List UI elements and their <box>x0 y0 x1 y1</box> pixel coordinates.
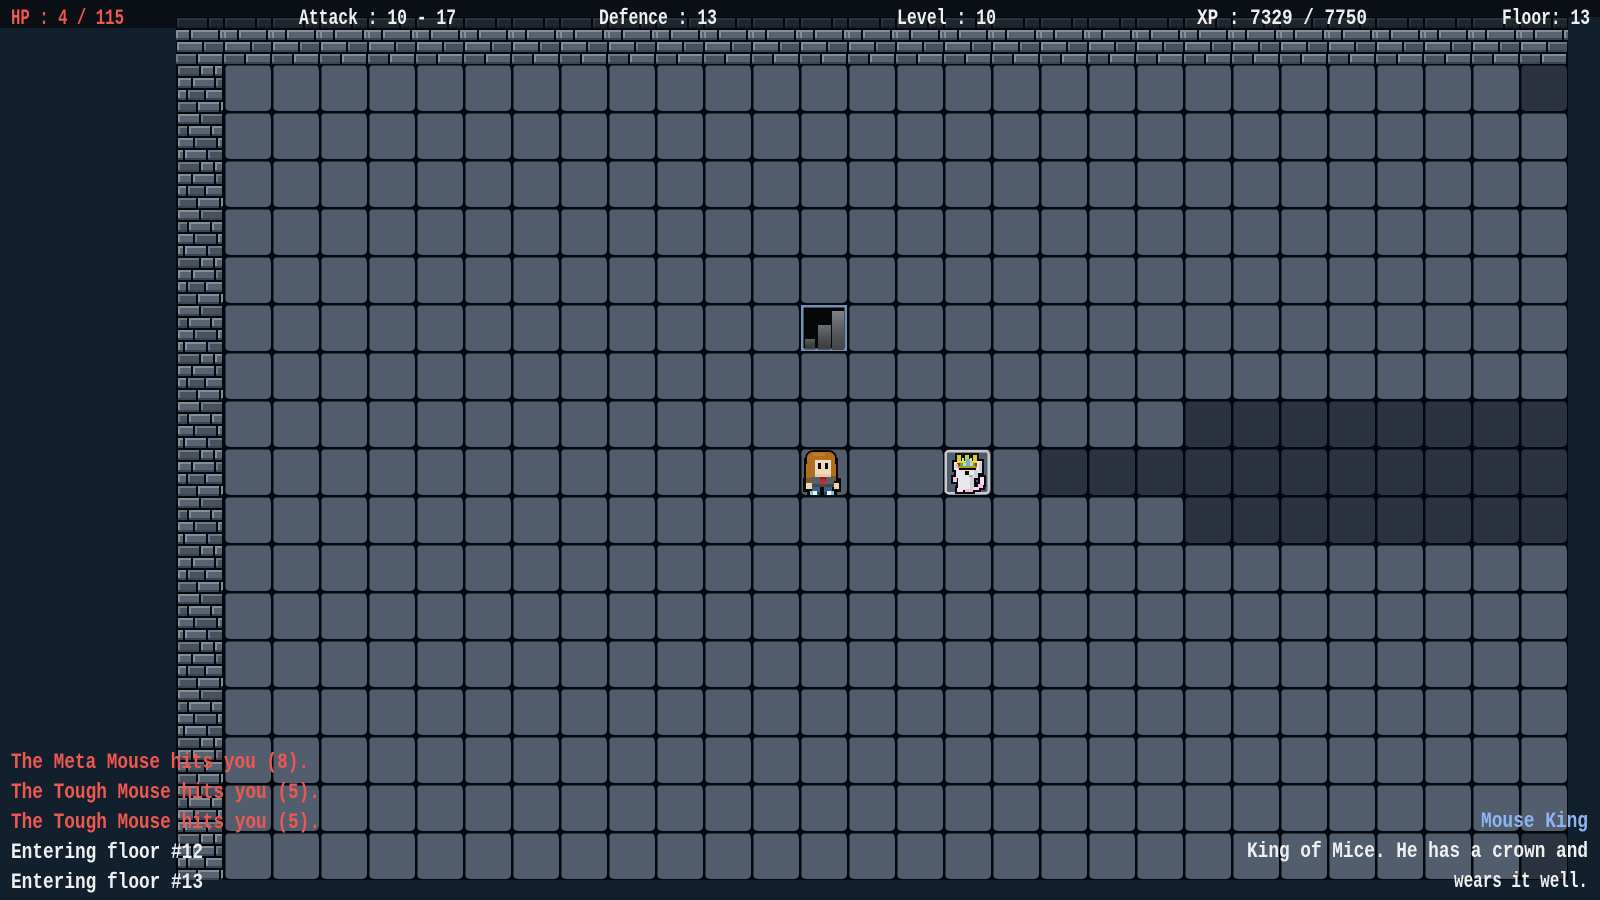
svg-text:HP : 4 / 115: HP : 4 / 115 <box>11 6 124 31</box>
svg-text:The Tough Mouse hits you (5).: The Tough Mouse hits you (5). <box>11 780 320 805</box>
svg-text:Defence : 13: Defence : 13 <box>599 6 717 31</box>
svg-text:XP : 7329 / 7750: XP : 7329 / 7750 <box>1197 6 1367 31</box>
svg-text:Entering floor #13: Entering floor #13 <box>11 870 203 895</box>
svg-text:wears it well.: wears it well. <box>1454 869 1588 894</box>
svg-text:Attack : 10 - 17: Attack : 10 - 17 <box>299 6 456 31</box>
svg-text:Mouse King: Mouse King <box>1481 809 1588 834</box>
svg-text:The Meta Mouse hits you (8).: The Meta Mouse hits you (8). <box>11 750 309 775</box>
svg-text:Floor: 13: Floor: 13 <box>1502 6 1590 31</box>
svg-text:The Tough Mouse hits you (5).: The Tough Mouse hits you (5). <box>11 810 320 835</box>
svg-text:Level : 10: Level : 10 <box>897 6 996 31</box>
svg-text:Entering floor #12: Entering floor #12 <box>11 840 203 865</box>
svg-text:King of Mice. He has a crown a: King of Mice. He has a crown and <box>1247 839 1588 864</box>
